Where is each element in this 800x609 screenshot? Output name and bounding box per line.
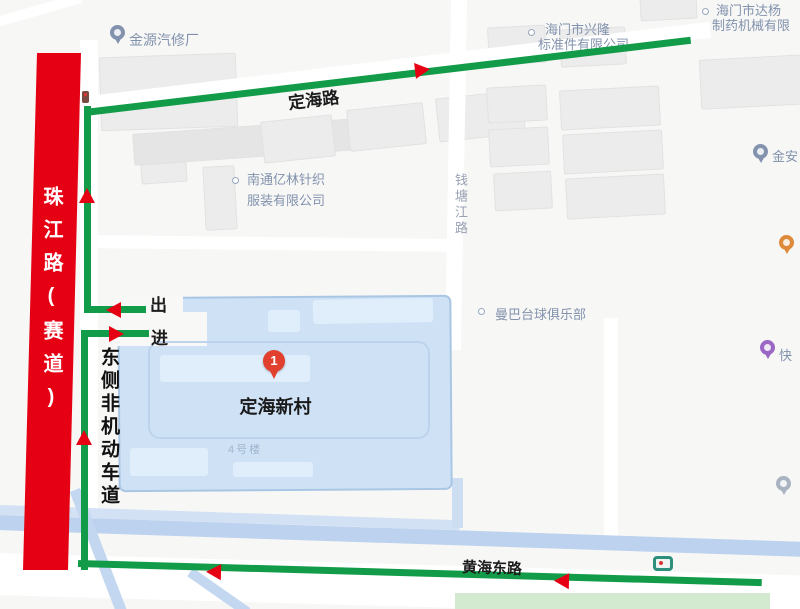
gray-poi-pin-icon[interactable]	[776, 476, 791, 491]
poi-dot-icon	[478, 308, 485, 315]
poi-manba-billiards[interactable]: 曼巴台球俱乐部	[495, 304, 586, 323]
map-block	[488, 126, 550, 167]
area-building	[233, 462, 313, 477]
poi-dayang-line2[interactable]: 制药机械有限	[712, 15, 790, 34]
area-building	[313, 298, 433, 324]
poi-yilin-line1[interactable]: 南通亿林针织	[247, 169, 325, 188]
road-segment	[0, 0, 83, 29]
destination-name-label: 定海新村	[228, 393, 323, 419]
poi-yilin-line2[interactable]: 服装有限公司	[247, 190, 325, 209]
area-building	[130, 448, 208, 476]
purple-poi-pin-icon[interactable]	[760, 340, 775, 355]
bus-stop-icon[interactable]	[653, 556, 673, 571]
map-block	[639, 0, 697, 21]
jinan-pin-icon[interactable]	[753, 144, 768, 159]
traffic-light-icon	[82, 91, 89, 103]
map-canvas[interactable]: 4号楼 珠江路(赛道) 定海路 黄海东路 出 进 东侧非机动车道 钱塘江路 1 …	[0, 0, 800, 609]
map-block	[493, 171, 553, 212]
route-segment-bikelane-south	[81, 330, 88, 570]
map-block	[346, 102, 427, 152]
destination-marker-icon[interactable]: 1	[263, 350, 285, 372]
map-block	[699, 54, 800, 110]
route-arrow-north-icon	[79, 188, 95, 203]
route-arrow-enter-icon	[109, 326, 124, 342]
poi-dot-icon	[528, 29, 535, 36]
road-segment	[85, 235, 455, 252]
dinghai-road-label: 定海路	[287, 83, 341, 114]
huanghai-road-label: 黄海东路	[462, 556, 523, 579]
zhujiang-road-label: 珠江路(赛道)	[37, 186, 64, 421]
east-bike-lane-label: 东侧非机动车道	[95, 347, 122, 508]
qiantangjiang-road-label: 钱塘江路	[451, 173, 470, 237]
poi-dot-icon	[232, 177, 239, 184]
enter-gate-label: 进	[151, 324, 168, 349]
map-block	[565, 173, 666, 219]
park-strip	[455, 593, 770, 609]
poi-kuai[interactable]: 快	[779, 345, 792, 364]
route-segment-bikelane-north	[84, 106, 91, 312]
map-block	[486, 84, 548, 123]
map-block	[260, 114, 336, 163]
route-arrow-east-icon	[414, 61, 431, 79]
poi-jinan[interactable]: 金安	[772, 146, 798, 165]
road-segment	[604, 318, 618, 548]
route-arrow-north-icon	[76, 430, 92, 445]
area-building	[160, 355, 310, 382]
route-arrow-west-icon	[554, 573, 569, 589]
destination-marker-number: 1	[263, 353, 285, 368]
map-block	[562, 129, 664, 174]
poi-jinyuan-auto[interactable]: 金源汽修厂	[129, 30, 199, 50]
orange-poi-pin-icon[interactable]	[779, 235, 794, 250]
area-building	[268, 310, 300, 332]
route-arrow-west-icon	[206, 564, 221, 580]
map-block	[140, 161, 187, 184]
map-block	[202, 165, 237, 231]
water-road	[452, 478, 463, 528]
building-4-label: 4号楼	[228, 441, 262, 457]
route-arrow-exit-icon	[106, 302, 121, 318]
poi-dot-icon	[702, 8, 709, 15]
auto-repair-pin-icon[interactable]	[110, 25, 125, 40]
exit-gate-label: 出	[150, 291, 167, 316]
map-block	[559, 85, 661, 130]
